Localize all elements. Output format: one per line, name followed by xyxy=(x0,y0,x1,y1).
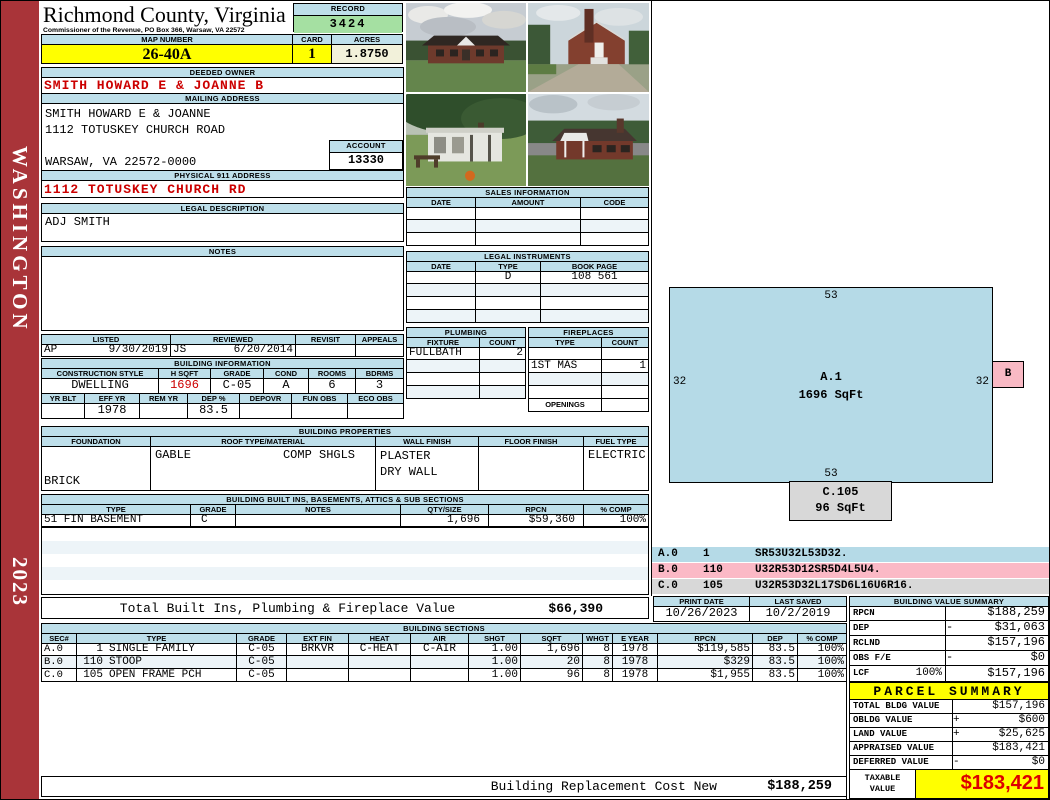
sketch-legend: A.01SR53U32L53D32. B.0110U32R53D12SR5D4L… xyxy=(652,547,1049,595)
review-values: AP 9/30/2019 JS 6/20/2014 xyxy=(41,344,404,357)
wall-finish-1: PLASTER xyxy=(380,448,476,464)
lcf-cell: LCF 100% xyxy=(850,666,946,681)
mailing-address-box: SMITH HOWARD E & JOANNE 1112 TOTUSKEY CH… xyxy=(41,103,404,171)
fixture-value: FULLBATH xyxy=(406,347,480,360)
sketch-c-label: C.105 xyxy=(790,485,891,499)
construction-style-value: DWELLING xyxy=(41,378,159,394)
taxable-value: $183,421 xyxy=(916,770,1048,798)
section-row-a: A.0 1SINGLE FAMILY C-05 BRKVR C-HEAT C-A… xyxy=(41,643,847,656)
instruments-row xyxy=(406,297,649,310)
cond-value: A xyxy=(264,378,309,394)
property-record-card: WASHINGTON 2023 Richmond County, Virgini… xyxy=(0,0,1050,800)
taxable-value-row: TAXABLE VALUE $183,421 xyxy=(849,770,1049,799)
bvs-row-rpcn: RPCN $188,259 xyxy=(849,606,1049,621)
dep-pct-value: 83.5 xyxy=(188,403,240,419)
fireplace-count-value: 1 xyxy=(602,360,649,373)
last-saved-value: 10/2/2019 xyxy=(750,606,847,622)
roof-material-value: COMP SHGLS xyxy=(283,448,355,490)
bvs-row-obs: OBS F/E - $0 xyxy=(849,651,1049,666)
plumbing-count-value: 2 xyxy=(480,347,526,360)
properties-values: BRICK GABLE COMP SHGLS PLASTER DRY WALL … xyxy=(41,446,649,491)
builtins-row: 51 FIN BASEMENT C 1,696 $59,360 100% xyxy=(41,514,649,527)
builtin-grade-value: C xyxy=(191,514,236,527)
parcel-row-land: LAND VALUE + $25,625 xyxy=(849,728,1049,742)
listed-by: AP xyxy=(44,344,57,356)
record-box: RECORD 3424 xyxy=(293,3,403,32)
notes-value xyxy=(41,256,404,331)
sketch-section-a: 53 53 32 32 A.1 1696 SqFt xyxy=(669,287,993,483)
bvs-row-dep: DEP - $31,063 xyxy=(849,621,1049,636)
printsave-values: 10/26/2023 10/2/2019 xyxy=(653,606,847,622)
sketch-a-sqft: 1696 SqFt xyxy=(670,388,992,402)
replacement-cost-row: Building Replacement Cost New $188,259 xyxy=(41,776,847,797)
print-date-value: 10/26/2023 xyxy=(653,606,750,622)
openings-row: OPENINGS xyxy=(528,399,649,412)
instruments-row xyxy=(406,284,649,297)
listed-date: 9/30/2019 xyxy=(109,344,168,356)
revisit-value xyxy=(296,344,356,357)
openings-label: OPENINGS xyxy=(528,399,602,412)
bvs-row-rclnd: RCLND $157,196 xyxy=(849,636,1049,651)
builtins-total-row: Total Built Ins, Plumbing & Fireplace Va… xyxy=(41,597,649,619)
sketch-section-c: C.105 96 SqFt xyxy=(789,481,892,521)
house-front-photo[interactable] xyxy=(406,3,526,92)
sales-row xyxy=(406,207,649,220)
parcel-row-appraised: APPRAISED VALUE $183,421 xyxy=(849,742,1049,756)
parcel-row-bldg: TOTAL BLDG VALUE $157,196 xyxy=(849,700,1049,714)
replacement-cost-label: Building Replacement Cost New xyxy=(491,779,717,794)
fireplaces-row: 1ST MAS 1 xyxy=(528,360,649,373)
openings-value xyxy=(602,399,649,412)
sketch-dim-top: 53 xyxy=(670,290,992,302)
record-number: 3424 xyxy=(294,16,402,33)
account-box: ACCOUNT 13330 xyxy=(329,140,403,170)
plumbing-row xyxy=(406,373,526,386)
building-info-row2-values: 1978 83.5 xyxy=(41,403,404,419)
legend-row-b: B.0110U32R53D12SR5D4L5U4. xyxy=(652,563,1049,578)
legend-row-a: A.01SR53U32L53D32. xyxy=(652,547,1049,562)
reviewed-by: JS xyxy=(173,344,186,356)
sections-divider xyxy=(846,623,847,800)
photo-grid xyxy=(406,3,649,186)
mailing-line-1: SMITH HOWARD E & JOANNE xyxy=(42,104,403,122)
foundation-value: BRICK xyxy=(41,446,151,491)
fireplace-type-value: 1ST MAS xyxy=(528,360,602,373)
effyr-value: 1978 xyxy=(85,403,140,419)
card-value: 1 xyxy=(293,44,332,64)
plumbing-row xyxy=(406,386,526,399)
sketch-c-sqft: 96 SqFt xyxy=(790,501,891,515)
plumbing-row: FULLBATH 2 xyxy=(406,347,526,360)
column-divider xyxy=(651,1,652,596)
fireplaces-row xyxy=(528,347,649,360)
instrument-bookpage-value: 108 561 xyxy=(541,271,649,284)
parcel-summary: TOTAL BLDG VALUE $157,196 OBLDG VALUE + … xyxy=(849,700,1049,799)
instrument-date-value xyxy=(406,271,476,284)
building-value-summary: RPCN $188,259 DEP - $31,063 RCLND $157,1… xyxy=(849,606,1049,682)
legal-description-value: ADJ SMITH xyxy=(41,213,404,242)
builtins-empty-rows xyxy=(41,527,649,595)
replacement-cost-value: $188,259 xyxy=(717,779,846,794)
roof-type-value: GABLE xyxy=(155,448,191,490)
remyr-value xyxy=(140,403,188,419)
mailing-line-2: 1112 TOTUSKEY CHURCH ROAD xyxy=(42,122,403,138)
section-row-c: C.0 105OPEN FRAME PCH C-05 1.00 96 8 197… xyxy=(41,669,847,682)
parcel-summary-header: PARCEL SUMMARY xyxy=(849,682,1049,700)
physical-address-value: 1112 TOTUSKEY CHURCH RD xyxy=(41,180,404,198)
reviewed-value: JS 6/20/2014 xyxy=(171,344,296,357)
taxable-label: TAXABLE VALUE xyxy=(850,770,916,798)
rooms-value: 6 xyxy=(309,378,356,394)
legend-row-c: C.0105U32R53D32L17SD6L16U6R16. xyxy=(652,579,1049,594)
builtin-rpcn-value: $59,360 xyxy=(489,514,584,527)
record-label: RECORD xyxy=(294,4,402,16)
ecoobs-value xyxy=(348,403,404,419)
plumbing-row xyxy=(406,360,526,373)
appeals-value xyxy=(356,344,404,357)
sketch-dim-bottom: 53 xyxy=(670,468,992,480)
sidebar-state-label: WASHINGTON xyxy=(7,146,32,333)
fireplaces-row xyxy=(528,373,649,386)
county-header: Richmond County, Virginia Commissioner o… xyxy=(43,4,291,34)
yrblt-value xyxy=(41,403,85,419)
county-title: Richmond County, Virginia xyxy=(43,4,291,26)
sketch-section-b: B xyxy=(992,361,1024,388)
fireplaces-row xyxy=(528,386,649,399)
sales-row xyxy=(406,220,649,233)
depovr-value xyxy=(240,403,292,419)
builtins-total-label: Total Built Ins, Plumbing & Fireplace Va… xyxy=(42,601,473,616)
funobs-value xyxy=(292,403,348,419)
wall-finish-values: PLASTER DRY WALL xyxy=(376,446,479,491)
sales-row xyxy=(406,233,649,246)
instruments-row xyxy=(406,310,649,323)
fuel-type-value: ELECTRIC xyxy=(584,446,649,491)
house-porch-photo[interactable] xyxy=(406,94,526,186)
builtins-total-value: $66,390 xyxy=(473,601,648,616)
map-card-acres-values: 26-40A 1 1.8750 xyxy=(41,44,403,64)
instrument-type-value: D xyxy=(476,271,541,284)
acres-value: 1.8750 xyxy=(332,44,403,64)
map-number-value: 26-40A xyxy=(41,44,293,64)
commissioner-line: Commissioner of the Revenue, PO Box 366,… xyxy=(43,27,291,34)
sidebar-year-label: 2023 xyxy=(7,557,32,607)
sketch-a-label: A.1 xyxy=(670,370,992,384)
builtin-type-value: 51 FIN BASEMENT xyxy=(41,514,191,527)
bvs-row-lcf: LCF 100% $157,196 xyxy=(849,666,1049,682)
bdrms-value: 3 xyxy=(356,378,404,394)
deeded-owner-value: SMITH HOWARD E & JOANNE B xyxy=(41,77,404,94)
wall-finish-2: DRY WALL xyxy=(380,464,476,480)
house-side-photo[interactable] xyxy=(528,3,649,92)
account-label: ACCOUNT xyxy=(329,140,403,153)
grade-value: C-05 xyxy=(211,378,264,394)
year-sidebar: WASHINGTON 2023 xyxy=(1,1,39,800)
building-info-row1-values: DWELLING 1696 C-05 A 6 3 xyxy=(41,378,404,394)
parcel-row-obldg: OBLDG VALUE + $600 xyxy=(849,714,1049,728)
account-value: 13330 xyxy=(329,153,403,170)
house-rear-photo[interactable] xyxy=(528,94,649,186)
builtin-notes-value xyxy=(236,514,401,527)
instruments-row: D 108 561 xyxy=(406,271,649,284)
builtin-qty-value: 1,696 xyxy=(401,514,489,527)
hsqft-value: 1696 xyxy=(159,378,211,394)
listed-value: AP 9/30/2019 xyxy=(41,344,171,357)
section-row-b: B.0 110STOOP C-05 1.00 20 8 1978 $329 83… xyxy=(41,656,847,669)
floor-finish-value xyxy=(479,446,584,491)
parcel-row-deferred: DEFERRED VALUE - $0 xyxy=(849,756,1049,770)
builtin-comp-value: 100% xyxy=(584,514,649,527)
reviewed-date: 6/20/2014 xyxy=(234,344,293,356)
roof-values: GABLE COMP SHGLS xyxy=(151,446,376,491)
